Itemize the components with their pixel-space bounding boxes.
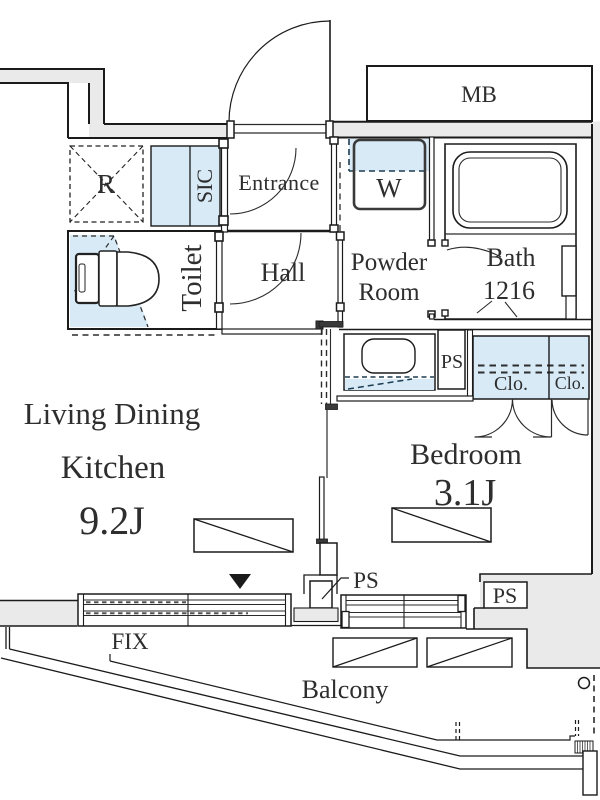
svg-text:Entrance: Entrance xyxy=(238,170,319,195)
svg-text:Bedroom: Bedroom xyxy=(410,438,522,471)
svg-text:PS: PS xyxy=(441,351,463,373)
svg-text:Kitchen: Kitchen xyxy=(61,450,165,486)
svg-text:Room: Room xyxy=(358,279,420,306)
svg-text:MB: MB xyxy=(461,82,497,107)
svg-text:Hall: Hall xyxy=(261,258,306,287)
svg-text:Bath: Bath xyxy=(486,243,535,272)
svg-text:Clo.: Clo. xyxy=(555,373,586,393)
svg-text:R: R xyxy=(97,169,115,199)
svg-text:W: W xyxy=(376,173,402,203)
svg-text:PS: PS xyxy=(493,583,517,608)
svg-text:Powder: Powder xyxy=(351,249,428,276)
svg-text:FIX: FIX xyxy=(111,629,148,654)
svg-text:Toilet: Toilet xyxy=(176,244,208,311)
svg-text:1216: 1216 xyxy=(483,276,535,305)
svg-text:Living Dining: Living Dining xyxy=(24,396,201,431)
svg-text:Clo.: Clo. xyxy=(494,373,528,395)
svg-text:SIC: SIC xyxy=(192,169,217,203)
svg-text:9.2J: 9.2J xyxy=(79,498,145,543)
svg-text:PS: PS xyxy=(353,568,379,593)
svg-text:Balcony: Balcony xyxy=(302,675,389,704)
